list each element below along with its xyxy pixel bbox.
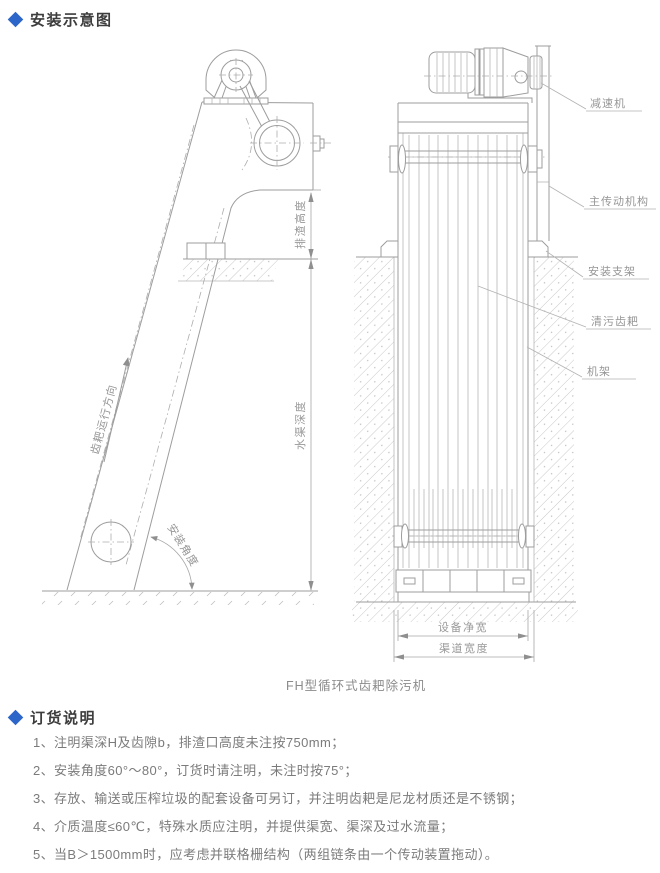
ordering-section-header: 订货说明: [10, 707, 96, 728]
installation-diagram: 齿耙运行方向 安装角度 排渣高度 水渠深度: [0, 0, 660, 700]
callout-frame: 机架: [587, 364, 611, 378]
callout-main-drive: 主传动机构: [589, 194, 649, 208]
callout-cleaning-rake: 清污齿耙: [591, 315, 639, 328]
ordering-item-4: 4、介质温度≤60℃，特殊水质应注明，并提供渠宽、渠深及过水流量；: [33, 819, 648, 834]
diamond-bullet-icon: [8, 710, 24, 726]
ordering-item-2: 2、安装角度60°～80°，订货时请注明，未注时按75°；: [33, 763, 648, 778]
ordering-section-title: 订货说明: [30, 707, 96, 728]
callout-reducer: 减速机: [590, 96, 626, 110]
channel-depth-label: 水渠深度: [293, 400, 307, 450]
ordering-item-1: 1、注明渠深H及齿隙b，排渣口高度未注按750mm；: [33, 735, 648, 750]
discharge-height-label: 排渣高度: [293, 199, 307, 249]
install-angle-label: 安装角度: [164, 521, 201, 569]
ordering-item-3: 3、存放、输送或压榨垃圾的配套设备可另订，并注明齿耙是尼龙材质还是不锈钢；: [33, 791, 648, 806]
callout-mount-bracket: 安装支架: [588, 264, 636, 278]
side-view: 齿耙运行方向 安装角度 排渣高度 水渠深度: [42, 50, 331, 605]
equipment-net-width-label: 设备净宽: [438, 620, 488, 634]
front-view: 设备净宽 渠道宽度: [352, 46, 578, 662]
manual-page: { "colors": { "accent": "#2d66c9" }, "in…: [0, 0, 660, 873]
channel-width-label: 渠道宽度: [439, 641, 489, 655]
diagram-caption: FH型循环式齿耙除污机: [286, 678, 426, 693]
ordering-item-5: 5、当B＞1500mm时，应考虑并联格栅结构（两组链条由一个传动装置拖动）。: [33, 847, 648, 862]
ordering-items: 1、注明渠深H及齿隙b，排渣口高度未注按750mm； 2、安装角度60°～80°…: [33, 735, 648, 862]
